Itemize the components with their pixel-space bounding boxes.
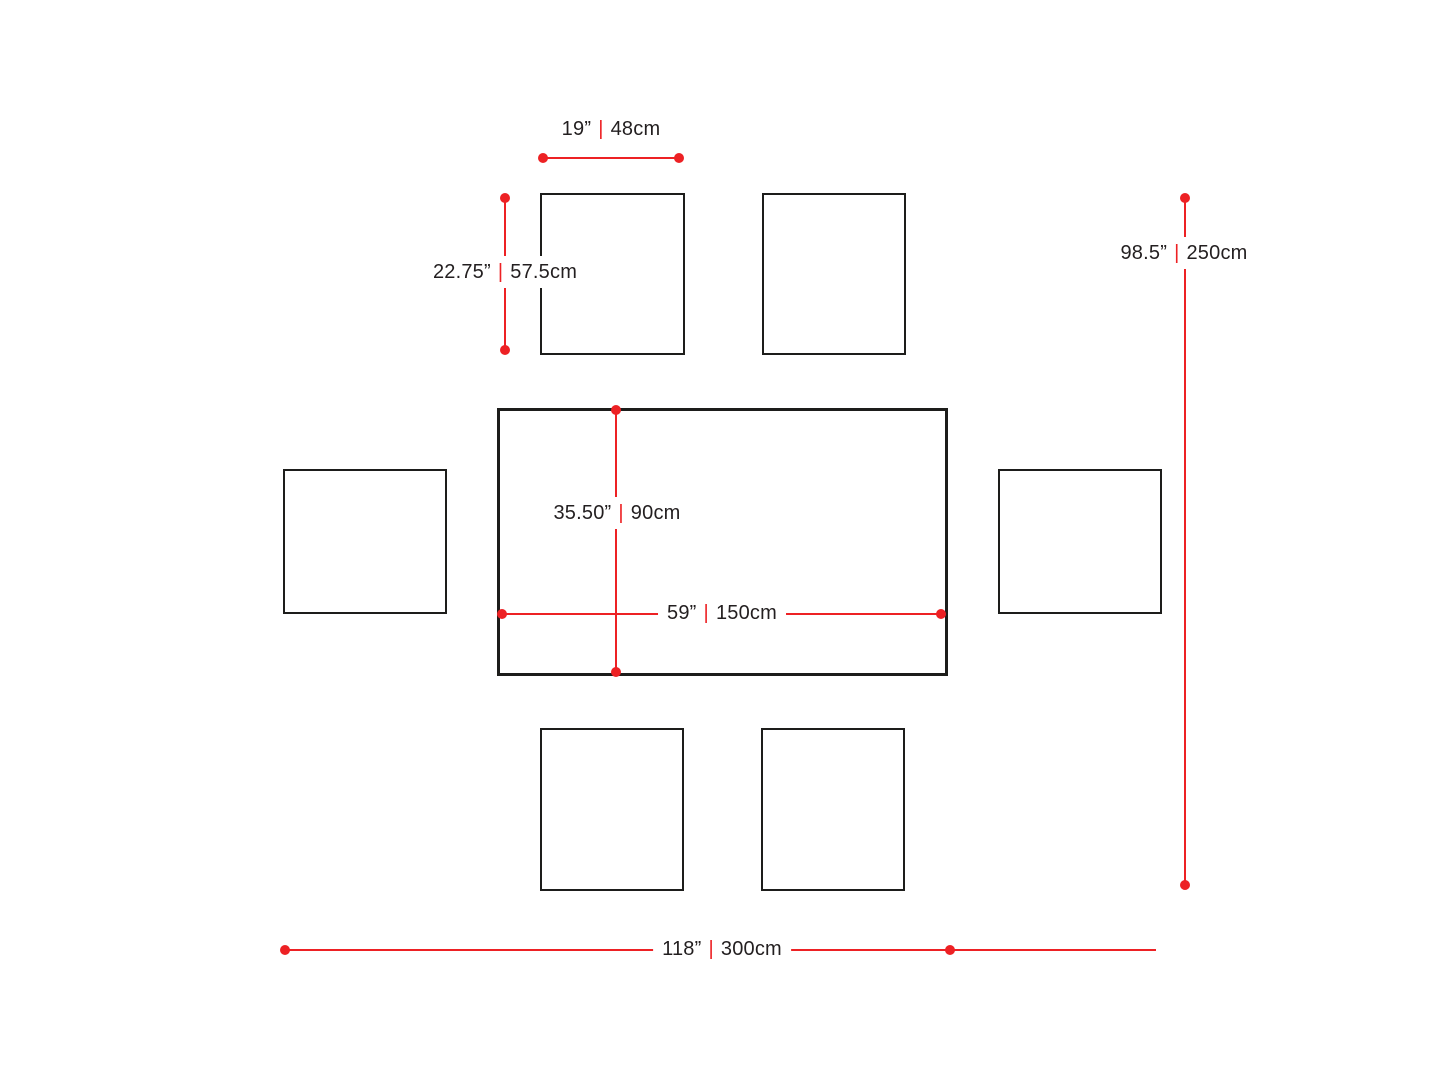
metric-value: 90cm xyxy=(631,503,681,523)
chair-right xyxy=(998,469,1162,614)
unit-separator: | xyxy=(708,939,713,959)
chair-left xyxy=(283,469,447,614)
dimension-endpoint-dot xyxy=(674,153,684,163)
dimension-line xyxy=(615,410,617,672)
dimension-chair-depth-label: 22.75” | 57.5cm xyxy=(424,256,586,288)
chair-bottom-right xyxy=(761,728,905,891)
imperial-value: 19” xyxy=(562,119,592,139)
metric-value: 150cm xyxy=(716,603,777,623)
dimension-table-depth-label: 35.50” | 90cm xyxy=(544,497,689,529)
dimension-table-width-label: 59” | 150cm xyxy=(658,597,786,629)
dimension-line xyxy=(543,157,679,159)
dimension-endpoint-dot xyxy=(936,609,946,619)
unit-separator: | xyxy=(704,603,709,623)
dimension-endpoint-dot xyxy=(611,405,621,415)
imperial-value: 22.75” xyxy=(433,262,491,282)
imperial-value: 35.50” xyxy=(553,503,611,523)
unit-separator: | xyxy=(598,119,603,139)
dimension-overall-depth-label: 98.5” | 250cm xyxy=(1111,237,1256,269)
dimension-line xyxy=(1184,198,1186,885)
dimension-endpoint-dot xyxy=(497,609,507,619)
chair-top-right xyxy=(762,193,906,355)
unit-separator: | xyxy=(1174,243,1179,263)
dimension-overall-width-label: 118” | 300cm xyxy=(653,933,791,965)
chair-bottom-left xyxy=(540,728,684,891)
dining-table xyxy=(497,408,948,676)
imperial-value: 59” xyxy=(667,603,697,623)
metric-value: 250cm xyxy=(1186,243,1247,263)
dimension-diagram: 19” | 48cm 22.75” | 57.5cm 35.50” | 90cm xyxy=(0,0,1445,1084)
metric-value: 57.5cm xyxy=(510,262,577,282)
dimension-endpoint-dot xyxy=(945,945,955,955)
dimension-endpoint-dot xyxy=(280,945,290,955)
imperial-value: 118” xyxy=(662,939,701,959)
dimension-endpoint-dot xyxy=(500,345,510,355)
dimension-endpoint-dot xyxy=(500,193,510,203)
imperial-value: 98.5” xyxy=(1120,243,1167,263)
dimension-endpoint-dot xyxy=(1180,880,1190,890)
unit-separator: | xyxy=(618,503,623,523)
dimension-endpoint-dot xyxy=(1180,193,1190,203)
metric-value: 300cm xyxy=(721,939,782,959)
dimension-endpoint-dot xyxy=(611,667,621,677)
dimension-chair-width-label: 19” | 48cm xyxy=(562,119,661,139)
dimension-endpoint-dot xyxy=(538,153,548,163)
unit-separator: | xyxy=(498,262,503,282)
metric-value: 48cm xyxy=(611,119,661,139)
